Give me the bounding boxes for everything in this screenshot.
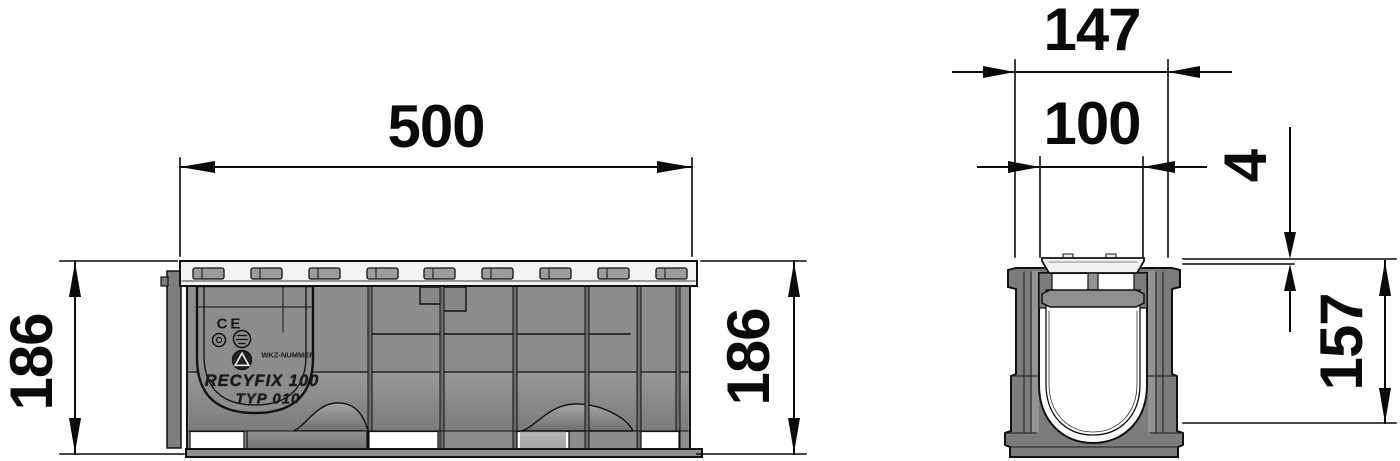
dim-width-100 — [978, 157, 1206, 257]
dim-length-500 — [180, 158, 692, 256]
bottom-rail — [186, 449, 702, 457]
dim-height-left-label: 186 — [2, 313, 62, 410]
ce-mark: CE — [217, 317, 244, 332]
section-view — [953, 60, 1396, 457]
tool-number-label: WKZ-NUMMER — [261, 351, 314, 359]
dim-edge-offset-label: 4 — [1216, 150, 1276, 182]
technical-drawing: 500 186 186 147 100 4 157 CE WKZ-NUMMER … — [0, 0, 1400, 461]
dim-overall-width-label: 147 — [1043, 0, 1140, 60]
dim-height-186-left — [60, 261, 184, 454]
grating-strip — [180, 261, 697, 286]
end-cap-tab — [161, 271, 181, 448]
dim-length-label: 500 — [387, 97, 484, 157]
dim-height-right-label: 186 — [719, 308, 779, 405]
drawing-canvas — [0, 0, 1400, 461]
recycling-triangle-icon — [233, 351, 252, 370]
product-name-label: RECYFIX 100 — [205, 373, 320, 390]
side-view — [60, 158, 806, 457]
dim-depth-label: 157 — [1312, 293, 1372, 390]
grating-slots — [193, 268, 687, 279]
product-type-label: TYP 010 — [236, 392, 301, 407]
dim-clear-width-label: 100 — [1043, 94, 1140, 154]
